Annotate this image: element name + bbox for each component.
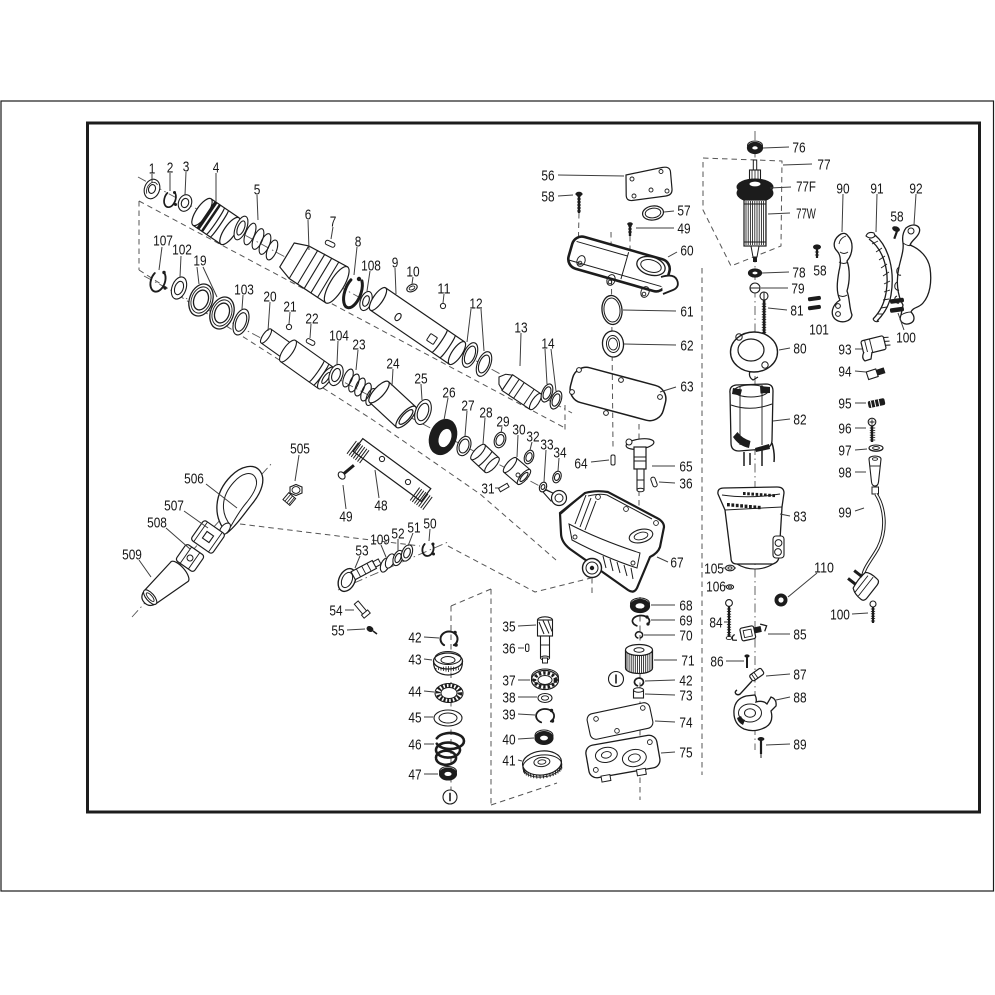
svg-text:108: 108 [361,258,381,275]
svg-text:58: 58 [541,189,554,206]
svg-text:23: 23 [352,337,365,354]
svg-text:61: 61 [680,304,693,321]
svg-text:41: 41 [502,753,515,770]
svg-text:33: 33 [540,437,553,454]
svg-text:40: 40 [502,732,515,749]
svg-text:49: 49 [339,509,352,526]
svg-text:106: 106 [706,579,726,596]
svg-text:110: 110 [814,560,834,577]
svg-text:100: 100 [896,330,916,347]
svg-text:22: 22 [305,311,318,328]
svg-text:109: 109 [370,532,390,549]
svg-text:505: 505 [290,441,310,458]
svg-text:57: 57 [677,203,690,220]
svg-text:85: 85 [793,627,806,644]
svg-text:509: 509 [122,547,142,564]
svg-text:45: 45 [408,710,421,727]
svg-text:79: 79 [791,281,804,298]
svg-text:58: 58 [813,263,826,280]
svg-text:35: 35 [502,619,515,636]
svg-text:38: 38 [502,690,515,707]
svg-text:93: 93 [838,342,851,359]
svg-text:94: 94 [838,364,851,381]
svg-text:65: 65 [679,459,692,476]
svg-text:89: 89 [793,737,806,754]
svg-text:63: 63 [680,379,693,396]
svg-text:14: 14 [541,336,554,353]
svg-text:56: 56 [541,168,554,185]
svg-text:54: 54 [329,603,342,620]
svg-text:60: 60 [680,243,693,260]
svg-text:71: 71 [681,653,694,670]
svg-text:82: 82 [793,412,806,429]
svg-text:64: 64 [574,456,587,473]
svg-text:100: 100 [830,607,850,624]
svg-text:87: 87 [793,667,806,684]
svg-text:102: 102 [172,242,192,259]
svg-text:58: 58 [890,209,903,226]
svg-text:98: 98 [838,465,851,482]
svg-text:46: 46 [408,737,421,754]
svg-text:84: 84 [709,615,722,632]
svg-text:30: 30 [512,422,525,439]
svg-text:55: 55 [331,623,344,640]
svg-text:507: 507 [164,498,184,515]
svg-text:88: 88 [793,690,806,707]
svg-text:101: 101 [809,322,829,339]
svg-text:49: 49 [677,221,690,238]
svg-text:70: 70 [679,628,692,645]
svg-text:74: 74 [679,715,692,732]
svg-text:75: 75 [679,745,692,762]
svg-text:67: 67 [670,555,683,572]
svg-text:83: 83 [793,509,806,526]
svg-text:29: 29 [496,414,509,431]
svg-text:47: 47 [408,767,421,784]
svg-text:48: 48 [374,498,387,515]
svg-text:77F: 77F [796,179,816,196]
svg-text:78: 78 [792,265,805,282]
svg-text:506: 506 [184,471,204,488]
svg-text:26: 26 [442,385,455,402]
svg-text:73: 73 [679,688,692,705]
svg-text:103: 103 [234,282,254,299]
svg-text:8: 8 [355,234,362,251]
svg-text:81: 81 [790,303,803,320]
svg-text:43: 43 [408,652,421,669]
svg-text:42: 42 [408,630,421,647]
svg-text:77W: 77W [796,206,816,223]
svg-text:96: 96 [838,421,851,438]
svg-text:36: 36 [679,476,692,493]
svg-text:19: 19 [193,253,206,270]
svg-text:51: 51 [407,520,420,537]
svg-text:32: 32 [526,429,539,446]
svg-text:36: 36 [502,641,515,658]
svg-text:508: 508 [147,515,167,532]
svg-text:86: 86 [710,654,723,671]
svg-text:80: 80 [793,341,806,358]
svg-text:97: 97 [838,443,851,460]
svg-text:27: 27 [461,398,474,415]
svg-text:37: 37 [502,673,515,690]
svg-text:44: 44 [408,684,421,701]
svg-text:104: 104 [329,328,349,345]
svg-text:95: 95 [838,396,851,413]
svg-text:28: 28 [479,405,492,422]
svg-text:76: 76 [792,140,805,157]
svg-text:62: 62 [680,338,693,355]
svg-text:105: 105 [704,561,724,578]
svg-text:77: 77 [817,157,830,174]
svg-text:53: 53 [355,543,368,560]
svg-text:107: 107 [153,233,173,250]
svg-text:31: 31 [481,481,494,498]
svg-text:99: 99 [838,505,851,522]
svg-text:39: 39 [502,707,515,724]
svg-text:34: 34 [553,445,566,462]
